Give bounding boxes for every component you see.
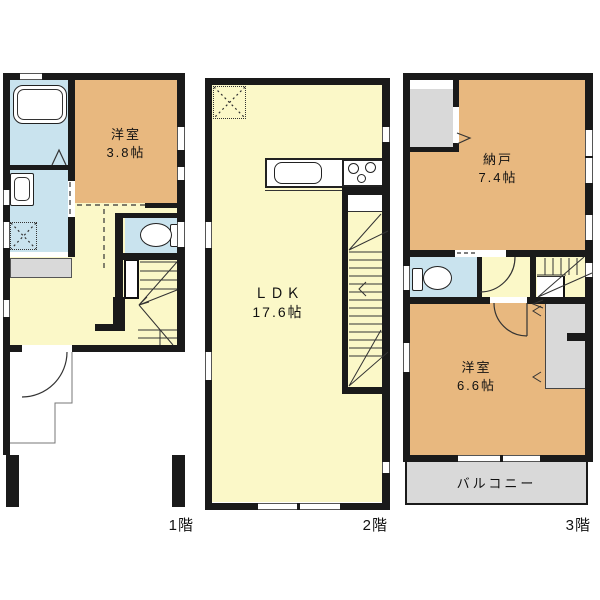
balcony-label: バルコニー	[457, 473, 537, 492]
wall	[10, 165, 73, 170]
window	[585, 158, 593, 183]
storage-door-opening	[455, 250, 478, 257]
closet-top-strip	[410, 80, 453, 89]
wall	[115, 253, 185, 260]
washbasin-bowl	[14, 177, 30, 201]
closet-door-opening	[453, 107, 459, 143]
window	[20, 73, 42, 80]
room-size: 3.8帖	[106, 144, 145, 162]
wall	[403, 73, 593, 80]
window	[205, 352, 212, 380]
toilet-3f-bowl	[423, 266, 452, 290]
wall	[145, 203, 177, 208]
wall	[477, 257, 482, 297]
room-size: 17.6帖	[252, 303, 303, 322]
room-label-storage: 納戸 7.4帖	[412, 151, 584, 186]
stair-void-1f	[124, 259, 139, 299]
window-mullion	[297, 503, 300, 510]
wall	[342, 387, 390, 394]
wall	[403, 297, 490, 304]
toilet-1f-bowl	[140, 223, 172, 247]
room-size: 6.6帖	[457, 377, 496, 395]
window	[585, 130, 593, 156]
burner	[348, 163, 359, 174]
refrigerator-space	[213, 86, 246, 119]
wall	[205, 78, 212, 510]
floorplan: バルコニー	[0, 0, 600, 600]
window	[177, 222, 185, 247]
washer-pan	[10, 222, 37, 250]
closet-3f	[410, 89, 453, 147]
wall	[527, 297, 593, 304]
window	[585, 263, 593, 277]
toilet-3f-tank	[412, 268, 423, 291]
window	[3, 190, 10, 205]
window	[205, 222, 212, 248]
genkan-step-line	[10, 352, 72, 443]
wall	[205, 78, 390, 85]
porch-pillar	[6, 455, 19, 507]
floor3-label: 3階	[555, 514, 591, 535]
window	[177, 127, 185, 150]
burner	[365, 162, 376, 173]
porch-pillar	[172, 455, 185, 507]
wall	[530, 257, 536, 297]
window	[3, 300, 10, 317]
stove	[342, 159, 385, 187]
room-name: ＬＤＫ	[254, 284, 302, 303]
wall	[382, 78, 390, 510]
stair-landing-3f	[537, 276, 565, 297]
floor1-label: 1階	[158, 514, 194, 535]
wall	[342, 187, 390, 195]
washroom-door-opening	[68, 181, 75, 217]
room-name: 洋室	[111, 126, 141, 144]
storage-door-opening	[478, 250, 506, 257]
room-name: 洋室	[461, 359, 491, 377]
room-label-bedroom-1f: 洋室 3.8帖	[75, 126, 177, 161]
window	[403, 266, 410, 290]
room-label-ldk: ＬＤＫ 17.6帖	[212, 284, 344, 322]
room-label-bedroom-3f: 洋室 6.6帖	[408, 359, 545, 394]
window	[458, 455, 500, 462]
entry-door-opening	[22, 345, 72, 352]
wall	[3, 73, 10, 455]
wall	[95, 324, 115, 331]
balcony: バルコニー	[405, 462, 588, 505]
window	[585, 215, 593, 240]
window	[382, 462, 390, 473]
burner	[357, 174, 366, 183]
room-name: 納戸	[483, 151, 513, 169]
shoe-cabinet	[10, 258, 72, 278]
room-size: 7.4帖	[478, 169, 517, 187]
kitchen-sink	[274, 162, 322, 184]
window	[382, 127, 390, 142]
window	[3, 222, 10, 248]
floor2-label: 2階	[352, 514, 388, 535]
hall-3f-area	[477, 257, 530, 297]
bedroom-closet	[545, 303, 585, 389]
wall	[115, 213, 185, 218]
stair-landing-2f	[348, 195, 382, 212]
entry-door-arc	[22, 352, 67, 397]
closet-divider-wall	[567, 333, 585, 341]
bathtub-inner	[17, 89, 63, 120]
window	[503, 455, 540, 462]
window	[177, 167, 185, 180]
